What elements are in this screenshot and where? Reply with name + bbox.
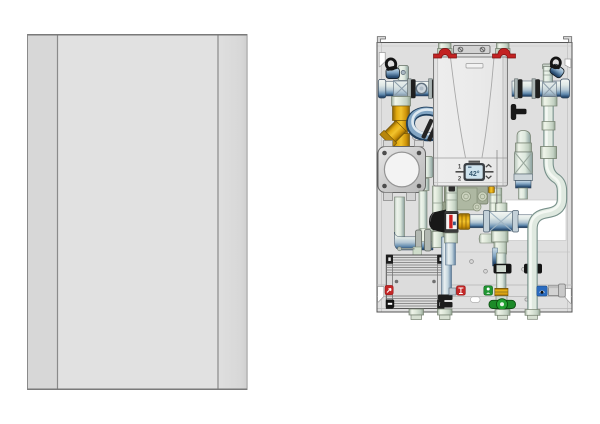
svg-text:42°: 42° xyxy=(469,170,480,178)
